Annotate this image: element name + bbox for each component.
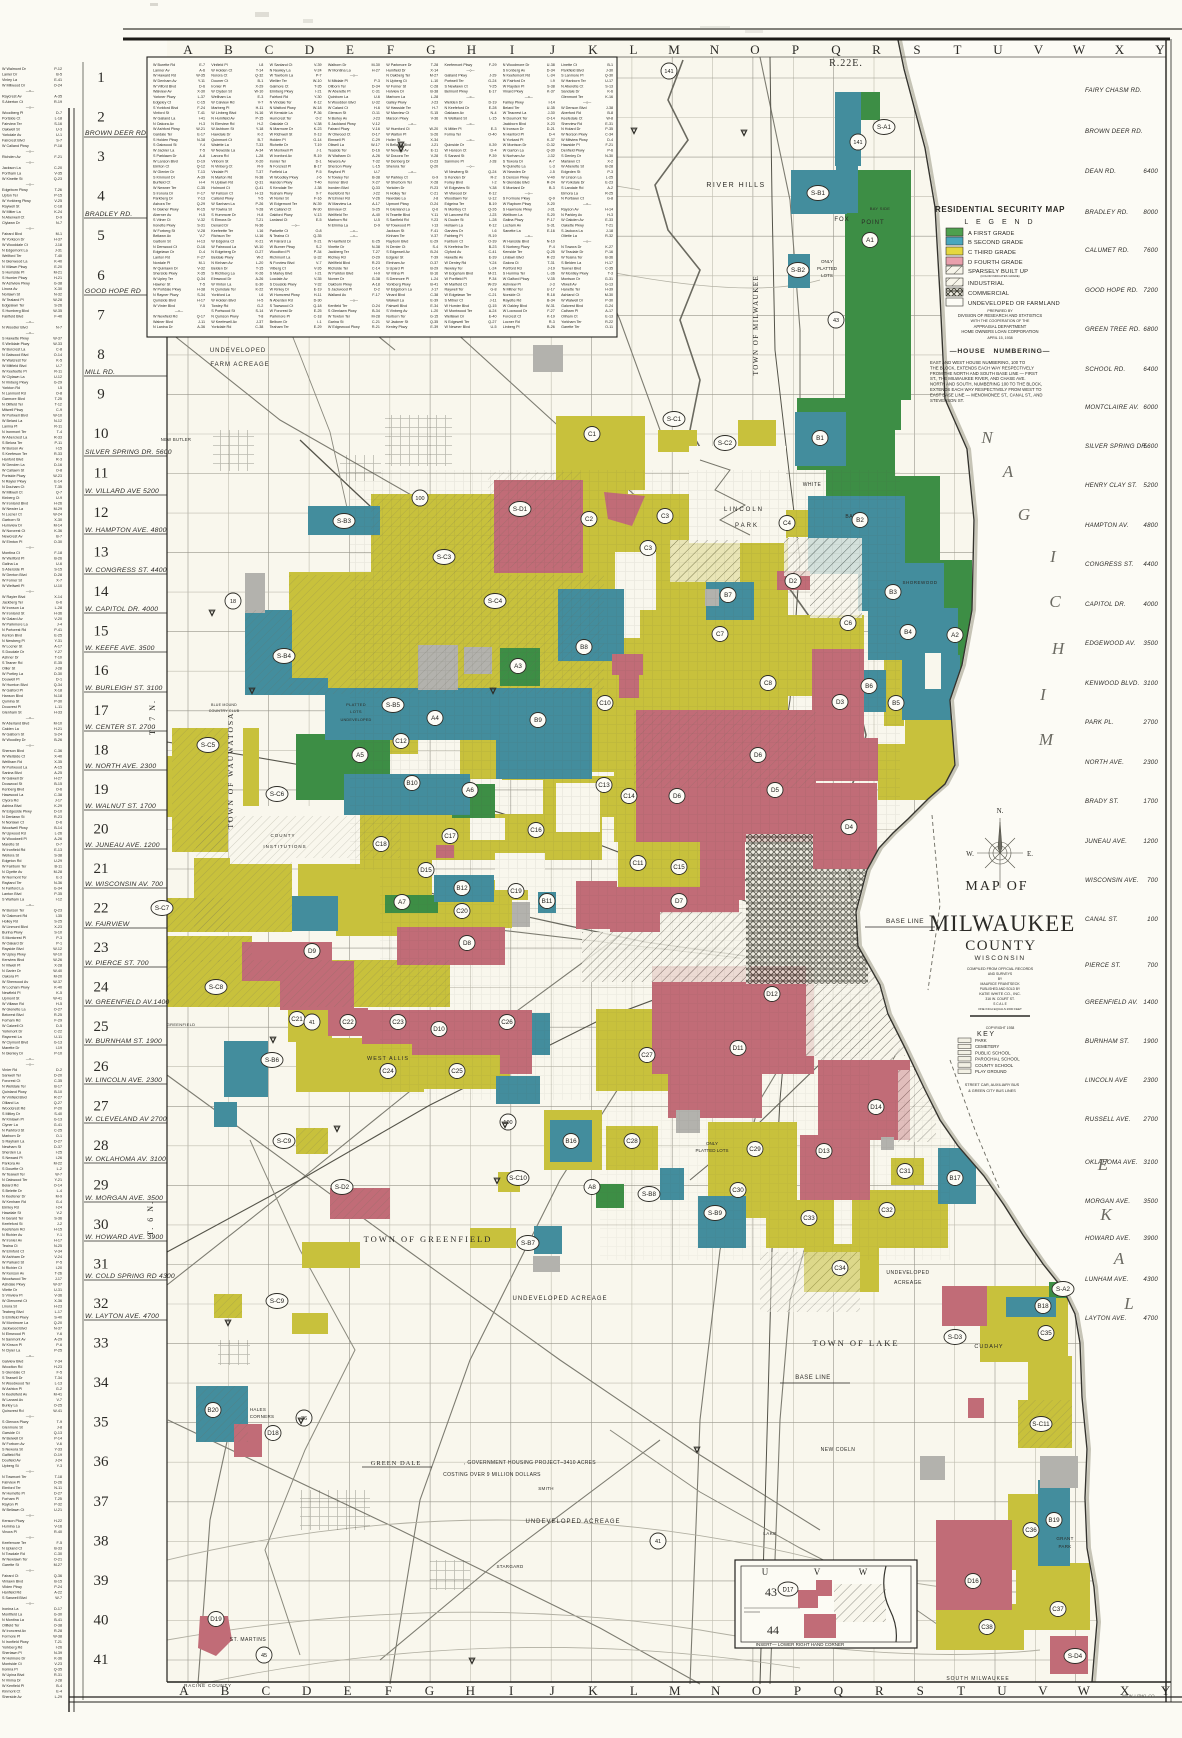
svg-text:Teaina Ct: Teaina Ct (2, 1244, 18, 1248)
svg-text:7: 7 (97, 307, 105, 323)
svg-text:INDUSTRIAL: INDUSTRIAL (968, 281, 1005, 287)
svg-text:NEW COELN: NEW COELN (821, 1447, 856, 1453)
svg-text:PIERCE ST.: PIERCE ST. (1085, 962, 1121, 969)
svg-text:W Teawell Ter: W Teawell Ter (2, 1173, 26, 1177)
svg-text:B-15: B-15 (54, 782, 62, 786)
svg-text:W-29: W-29 (488, 282, 497, 286)
svg-text:I-26: I-26 (56, 1646, 62, 1650)
svg-text:LINCOLN: LINCOLN (724, 507, 764, 513)
svg-text:H-13: H-13 (255, 191, 263, 195)
svg-text:W Haward Rd: W Haward Rd (153, 74, 176, 78)
svg-text:E-3: E-3 (56, 876, 62, 880)
svg-text:S-16: S-16 (54, 122, 62, 126)
svg-text:J-17: J-17 (55, 799, 62, 803)
svg-text:Wellora St: Wellora St (2, 854, 19, 858)
svg-text:A4: A4 (431, 715, 439, 722)
svg-text:L E G E N D: L E G E N D (964, 219, 1035, 226)
svg-text:W Denson Blvd: W Denson Blvd (561, 106, 586, 110)
svg-text:A-34: A-34 (256, 149, 264, 153)
svg-text:4400: 4400 (1143, 561, 1158, 568)
svg-text:B-33: B-33 (54, 1547, 62, 1551)
svg-text:P-35: P-35 (605, 127, 613, 131)
svg-text:Y-5: Y-5 (258, 197, 263, 201)
svg-text:E-30: E-30 (256, 282, 264, 286)
svg-text:R-3: R-3 (56, 458, 62, 462)
svg-text:B-10: B-10 (54, 1090, 62, 1094)
svg-text:S Sanard St: S Sanard St (445, 154, 465, 158)
svg-text:29: 29 (94, 1177, 109, 1193)
svg-text:39: 39 (94, 1573, 109, 1589)
svg-text:Oliborn Ter: Oliborn Ter (328, 84, 347, 88)
svg-text:AND SURVEYS: AND SURVEYS (988, 972, 1013, 976)
svg-text:S Landale Rd: S Landale Rd (561, 186, 583, 190)
svg-text:Elmford Ter: Elmford Ter (2, 1486, 22, 1490)
svg-text:L-20: L-20 (431, 309, 438, 313)
svg-text:C17: C17 (444, 833, 456, 840)
svg-text:Sandale Dr: Sandale Dr (561, 90, 580, 94)
svg-text:H-2: H-2 (257, 122, 263, 126)
svg-text:N-18: N-18 (54, 694, 62, 698)
svg-text:C-35: C-35 (54, 1079, 62, 1083)
svg-text:B-38: B-38 (372, 175, 380, 179)
svg-text:L-24: L-24 (489, 266, 496, 270)
svg-text:T-14: T-14 (256, 68, 263, 72)
svg-text:Galview Blvd: Galview Blvd (2, 1360, 23, 1364)
svg-text:S Douside Pkwy: S Douside Pkwy (270, 282, 297, 286)
svg-text:Walview Av: Walview Av (153, 90, 172, 94)
svg-text:Marborn Dr: Marborn Dr (2, 1134, 21, 1138)
svg-text:J-17: J-17 (55, 1277, 62, 1281)
svg-text:15: 15 (94, 624, 109, 640)
svg-text:N Vinberg Pkwy: N Vinberg Pkwy (2, 381, 28, 385)
svg-text:W Keefewell Av: W Keefewell Av (211, 320, 237, 324)
svg-text:PLAY GROUND: PLAY GROUND (975, 1069, 1007, 1074)
svg-text:V-7: V-7 (316, 261, 322, 265)
svg-text:W Portdale Pkwy: W Portdale Pkwy (153, 288, 181, 292)
svg-text:S-B4: S-B4 (277, 653, 291, 660)
svg-text:MAURICE FRANTSECK: MAURICE FRANTSECK (980, 982, 1020, 986)
svg-text:Aberner Av: Aberner Av (153, 213, 171, 217)
svg-text:S-38: S-38 (54, 854, 62, 858)
svg-text:W Belard La: W Belard La (2, 419, 23, 423)
svg-text:E-33: E-33 (605, 218, 613, 222)
svg-text:38: 38 (94, 1533, 109, 1549)
svg-text:W Montwell Pl: W Montwell Pl (270, 149, 294, 153)
svg-text:Welllawn Dr: Welllawn Dr (445, 315, 465, 319)
svg-text:Y-13: Y-13 (198, 197, 205, 201)
svg-text:S C A L E: S C A L E (993, 1002, 1007, 1006)
svg-text:W Holmore Dr: W Holmore Dr (2, 1657, 26, 1661)
svg-text:N Glenwood La: N Glenwood La (2, 260, 28, 264)
svg-text:Ironina Pl: Ironina Pl (2, 1668, 18, 1672)
svg-text:W Vilina Pl: W Vilina Pl (386, 272, 404, 276)
svg-text:Belmont Pkwy: Belmont Pkwy (445, 90, 469, 94)
svg-text:S Denson Pkwy: S Denson Pkwy (503, 175, 529, 179)
svg-text:P-4: P-4 (549, 245, 555, 249)
svg-text:Y-25: Y-25 (489, 84, 496, 88)
svg-text:S-C2: S-C2 (718, 440, 733, 447)
svg-text:W-8: W-8 (606, 117, 613, 121)
svg-text:W Edgewood Pkwy: W Edgewood Pkwy (328, 325, 360, 329)
svg-text:W-30: W-30 (313, 207, 322, 211)
svg-text:O-14: O-14 (547, 117, 555, 121)
svg-text:7200: 7200 (1143, 287, 1158, 294)
svg-text:X-30: X-30 (54, 287, 62, 291)
svg-text:V: V (814, 1567, 821, 1577)
svg-text:Edgeier St: Edgeier St (386, 256, 403, 260)
svg-text:N Woodwood Ter: N Woodwood Ter (2, 1382, 31, 1386)
svg-text:S Kendale Ter: S Kendale Ter (270, 186, 294, 190)
svg-text:C: C (261, 1683, 270, 1698)
svg-text:S-A2: S-A2 (1056, 1286, 1070, 1293)
svg-text:W Kenside La: W Kenside La (270, 111, 294, 115)
svg-text:19: 19 (94, 782, 109, 798)
svg-text:R-33: R-33 (54, 436, 62, 440)
svg-text:Galcrest Blvd: Galcrest Blvd (561, 304, 583, 308)
svg-text:H: H (1051, 639, 1066, 658)
svg-text:R-3: R-3 (549, 320, 555, 324)
svg-text:A3: A3 (514, 663, 522, 670)
svg-text:C10: C10 (599, 700, 611, 707)
svg-text:C-30: C-30 (54, 1552, 62, 1556)
svg-text:C14: C14 (623, 793, 635, 800)
svg-text:Vilwell Av: Vilwell Av (561, 282, 577, 286)
svg-text:Elmora La: Elmora La (561, 191, 579, 195)
svg-text:FARM ACREAGE: FARM ACREAGE (210, 362, 269, 368)
svg-text:LAKE: LAKE (763, 1531, 777, 1536)
svg-text:H-4: H-4 (199, 181, 205, 185)
svg-text:W Quinlawn Dr: W Quinlawn Dr (153, 266, 179, 270)
svg-text:S Marley Blvd: S Marley Blvd (270, 272, 293, 276)
svg-text:N Hanford Pl: N Hanford Pl (503, 133, 524, 137)
svg-text:D-10: D-10 (54, 810, 62, 814)
svg-text:S-26: S-26 (430, 133, 438, 137)
svg-text:Y-6: Y-6 (57, 1332, 62, 1336)
svg-text:Newley Ter: Newley Ter (445, 266, 464, 270)
svg-text:34: 34 (94, 1375, 110, 1391)
svg-text:W-37: W-37 (53, 1283, 62, 1287)
svg-text:X-14: X-14 (54, 595, 62, 599)
svg-text:S-38: S-38 (547, 84, 555, 88)
svg-text:Sherside Pkwy: Sherside Pkwy (153, 272, 178, 276)
svg-text:—ο—: —ο— (26, 744, 35, 748)
svg-text:S-D4: S-D4 (1068, 1653, 1083, 1660)
svg-text:V-7: V-7 (199, 234, 205, 238)
svg-text:BASE LINE: BASE LINE (795, 1375, 831, 1381)
svg-text:UNDEVELOPED: UNDEVELOPED (210, 348, 266, 354)
svg-text:D-16: D-16 (372, 149, 380, 153)
svg-text:W. GREENFIELD AV.1400: W. GREENFIELD AV.1400 (85, 999, 169, 1006)
svg-text:GOOD HOPE RD: GOOD HOPE RD (85, 288, 141, 295)
svg-text:W Holden Ct: W Holden Ct (211, 68, 232, 72)
svg-text:—ο—: —ο— (466, 95, 475, 99)
svg-text:PARK: PARK (735, 523, 759, 529)
svg-text:U-11: U-11 (54, 1035, 62, 1039)
svg-text:S Portwood St: S Portwood St (211, 309, 235, 313)
svg-text:Fairfield Blvd: Fairfield Blvd (2, 315, 23, 319)
svg-text:J-32: J-32 (548, 154, 555, 158)
svg-text:N-36: N-36 (54, 881, 62, 885)
svg-text:W Rayier Blvd: W Rayier Blvd (2, 595, 25, 599)
svg-text:COUNTRY CLUB: COUNTRY CLUB (209, 709, 240, 713)
svg-text:W Galard Av: W Galard Av (2, 617, 23, 621)
svg-text:T-40: T-40 (55, 254, 62, 258)
svg-text:3100: 3100 (1143, 1159, 1158, 1166)
svg-text:TOWN OF MILWAUKEE: TOWN OF MILWAUKEE (752, 275, 760, 376)
svg-text:& GREEN CITY BUS LINES: & GREEN CITY BUS LINES (968, 1089, 1016, 1093)
svg-text:J-19: J-19 (548, 266, 555, 270)
svg-text:U-6: U-6 (56, 562, 62, 566)
svg-text:U: U (993, 42, 1003, 57)
svg-text:C-21: C-21 (430, 191, 438, 195)
svg-text:W Yorkberg Pkwy: W Yorkberg Pkwy (2, 199, 31, 203)
svg-text:UNDEVELOPED: UNDEVELOPED (886, 1270, 929, 1276)
svg-text:Glenmont Ter: Glenmont Ter (561, 95, 584, 99)
svg-text:W-10: W-10 (255, 245, 264, 249)
svg-text:H-5: H-5 (56, 1002, 62, 1006)
svg-text:Humcrest Ter: Humcrest Ter (270, 117, 293, 121)
svg-text:R-28: R-28 (54, 1629, 62, 1633)
svg-text:P: P (792, 42, 799, 57)
svg-text:D16: D16 (967, 1578, 979, 1585)
svg-text:SHOREWOOD: SHOREWOOD (902, 580, 937, 585)
svg-text:V-35: V-35 (54, 172, 62, 176)
svg-text:W Newden Dr: W Newden Dr (503, 170, 527, 174)
svg-text:G-4: G-4 (56, 1200, 62, 1204)
svg-text:W Calard Ct: W Calard Ct (328, 106, 348, 110)
svg-text:Sherson Pkwy: Sherson Pkwy (328, 165, 352, 169)
svg-text:R-25: R-25 (605, 191, 613, 195)
svg-text:Q-41: Q-41 (255, 186, 263, 190)
svg-text:G-13: G-13 (54, 1118, 62, 1122)
svg-text:W Mitwood Dr: W Mitwood Dr (2, 84, 26, 88)
svg-text:Vilden Pkwy: Vilden Pkwy (2, 1585, 22, 1589)
svg-text:CALUMET RD.: CALUMET RD. (1085, 247, 1129, 254)
svg-text:X-35: X-35 (54, 760, 62, 764)
svg-text:K-40: K-40 (54, 986, 62, 990)
svg-text:LUNHAM AVE.: LUNHAM AVE. (1085, 1276, 1129, 1283)
svg-text:Parkette Ct: Parkette Ct (270, 229, 288, 233)
svg-text:W Montina La: W Montina La (328, 68, 352, 72)
svg-text:Doucrest Pl: Doucrest Pl (2, 705, 21, 709)
svg-text:C3: C3 (644, 545, 653, 552)
svg-text:E-17: E-17 (197, 133, 205, 137)
svg-text:W-35: W-35 (196, 74, 205, 78)
svg-text:—ο—: —ο— (26, 150, 35, 154)
svg-text:Raywell Ter: Raywell Ter (445, 288, 465, 292)
svg-text:Galora Ct: Galora Ct (503, 261, 519, 265)
svg-text:A: A (1002, 462, 1014, 481)
svg-text:W Woodley Dr: W Woodley Dr (2, 738, 26, 742)
svg-text:6400: 6400 (1143, 168, 1158, 175)
svg-text:KENWOOD BLVD.: KENWOOD BLVD. (1085, 680, 1140, 687)
svg-text:J-23: J-23 (431, 100, 438, 104)
svg-text:W Mitwell Ct: W Mitwell Ct (2, 491, 23, 495)
svg-text:Y-5: Y-5 (200, 304, 205, 308)
svg-text:W Woodwell Pl: W Woodwell Pl (2, 837, 27, 841)
svg-text:O-24: O-24 (430, 202, 438, 206)
svg-text:C20: C20 (456, 908, 468, 915)
svg-text:UNDEVELOPED OR FARMLAND: UNDEVELOPED OR FARMLAND (968, 301, 1060, 307)
svg-text:P-5: P-5 (56, 1261, 62, 1265)
svg-text:W-38: W-38 (53, 1635, 62, 1639)
svg-text:W Montmore La: W Montmore La (2, 1321, 29, 1325)
svg-text:W Hanfield Dr: W Hanfield Dr (328, 240, 352, 244)
svg-text:O-30: O-30 (54, 540, 62, 544)
svg-text:G-8: G-8 (607, 197, 613, 201)
svg-text:W Wellside Ct: W Wellside Ct (2, 755, 25, 759)
svg-text:W Rayborn Pkwy: W Rayborn Pkwy (503, 202, 531, 206)
svg-text:W. BURNHAM ST. 1900: W. BURNHAM ST. 1900 (85, 1038, 162, 1045)
svg-text:PARK: PARK (975, 1038, 987, 1043)
svg-text:A-18: A-18 (372, 282, 380, 286)
svg-text:S Oakwood St: S Oakwood St (153, 143, 177, 147)
svg-text:H-17: H-17 (605, 261, 613, 265)
svg-text:S-13: S-13 (605, 84, 613, 88)
svg-text:W Norier St: W Norier St (270, 197, 289, 201)
svg-text:COUNTY SCHOOL: COUNTY SCHOOL (975, 1063, 1014, 1068)
svg-text:H-23: H-23 (54, 1365, 62, 1369)
svg-text:M-20: M-20 (54, 975, 62, 979)
svg-text:PARK: PARK (1058, 1544, 1071, 1549)
svg-text:INSERT— LOWER RIGHT HAND CORNE: INSERT— LOWER RIGHT HAND CORNER (756, 1642, 845, 1647)
svg-text:O-27: O-27 (255, 250, 263, 254)
svg-text:C27: C27 (641, 1052, 653, 1059)
svg-text:W-10: W-10 (255, 90, 264, 94)
svg-text:T-28: T-28 (431, 63, 438, 67)
svg-text:Q-12: Q-12 (197, 165, 205, 169)
svg-text:Handen Pkwy: Handen Pkwy (270, 181, 293, 185)
svg-text:D-4: D-4 (199, 250, 205, 254)
svg-text:I-6: I-6 (259, 293, 263, 297)
svg-text:S-24: S-24 (54, 733, 62, 737)
svg-text:T-19: T-19 (314, 143, 321, 147)
svg-text:L-18: L-18 (55, 117, 62, 121)
svg-text:V-28: V-28 (431, 154, 439, 158)
svg-text:Y-4: Y-4 (200, 143, 205, 147)
svg-text:C25: C25 (451, 1068, 463, 1075)
svg-text:3900: 3900 (1143, 1235, 1158, 1242)
svg-text:W Belwell Dr: W Belwell Dr (2, 1437, 24, 1441)
svg-text:K-37: K-37 (547, 90, 555, 94)
svg-text:U-10: U-10 (54, 584, 62, 588)
svg-text:L: L (630, 1683, 638, 1698)
svg-text:N Elmwood Pl: N Elmwood Pl (2, 1332, 25, 1336)
svg-text:Calham Pl: Calham Pl (561, 309, 578, 313)
svg-text:W-26: W-26 (53, 958, 62, 962)
svg-text:Kenton Blvd: Kenton Blvd (2, 634, 22, 638)
svg-text:R-32: R-32 (605, 234, 613, 238)
svg-text:W Locham Pkwy: W Locham Pkwy (2, 986, 30, 990)
svg-text:Jackwood Blvd: Jackwood Blvd (2, 1327, 27, 1331)
svg-text:E-29: E-29 (430, 240, 438, 244)
svg-text:40: 40 (94, 1612, 109, 1628)
svg-text:S-C7: S-C7 (155, 905, 170, 912)
svg-text:N Keefemont Rd: N Keefemont Rd (503, 74, 530, 78)
svg-text:H-8: H-8 (257, 213, 263, 217)
svg-text:P-30: P-30 (54, 700, 62, 704)
svg-text:L-36: L-36 (547, 272, 554, 276)
svg-text:N Sanmont Av: N Sanmont Av (2, 1338, 26, 1342)
svg-text:S Sanfield Rd: S Sanfield Rd (386, 218, 409, 222)
svg-text:Wellford Ter: Wellford Ter (2, 254, 22, 258)
svg-text:A-22: A-22 (54, 1591, 62, 1595)
svg-text:Jackberg Ter: Jackberg Ter (2, 601, 24, 605)
svg-text:Wellfield Blvd: Wellfield Blvd (328, 261, 350, 265)
svg-text:Q: Q (831, 42, 841, 57)
svg-text:X-28: X-28 (430, 181, 438, 185)
svg-text:V-26: V-26 (372, 197, 380, 201)
svg-text:I-12: I-12 (56, 898, 62, 902)
svg-text:O-39: O-39 (488, 240, 496, 244)
svg-text:C3: C3 (661, 513, 670, 520)
svg-text:S Ironora Dr: S Ironora Dr (153, 191, 174, 195)
svg-text:W Edgelawn Ter: W Edgelawn Ter (445, 293, 473, 297)
svg-text:D-2: D-2 (56, 1068, 62, 1072)
svg-text:Ashina Blvd: Ashina Blvd (2, 804, 21, 808)
svg-text:R-11: R-11 (54, 370, 62, 374)
svg-text:N Glendale Blvd: N Glendale Blvd (503, 181, 530, 185)
svg-text:V-39: V-39 (314, 63, 322, 67)
svg-text:W-24: W-24 (53, 513, 62, 517)
svg-text:M-29: M-29 (54, 507, 62, 511)
svg-text:C-34: C-34 (605, 133, 613, 137)
svg-text:P: P (794, 1683, 801, 1698)
svg-text:T-25: T-25 (55, 397, 62, 401)
svg-text:O-21: O-21 (54, 1558, 62, 1562)
svg-text:H-14: H-14 (605, 207, 613, 211)
svg-text:N Forcrest Pl: N Forcrest Pl (270, 165, 292, 169)
svg-text:K-5: K-5 (56, 359, 62, 363)
svg-text:S Vilner Ct: S Vilner Ct (153, 218, 171, 222)
svg-text:K-16: K-16 (605, 95, 613, 99)
svg-text:Belborn Dr: Belborn Dr (270, 320, 288, 324)
svg-text:T-33: T-33 (256, 143, 263, 147)
svg-text:R-21: R-21 (372, 325, 380, 329)
svg-text:Q-9: Q-9 (549, 197, 555, 201)
svg-text:N Doumont Ter: N Doumont Ter (503, 117, 529, 121)
svg-text:S Humina Ter: S Humina Ter (503, 272, 526, 276)
svg-text:N-4: N-4 (491, 111, 497, 115)
svg-text:BAY SIDE: BAY SIDE (870, 206, 891, 211)
svg-text:A-7: A-7 (549, 159, 555, 163)
svg-text:G-31: G-31 (605, 277, 613, 281)
svg-text:Quinland Pkwy: Quinland Pkwy (2, 1090, 27, 1094)
svg-text:S Belette Dr: S Belette Dr (2, 1189, 23, 1193)
svg-text:Q-25: Q-25 (547, 250, 555, 254)
svg-text:G-29: G-29 (54, 381, 62, 385)
svg-text:F-5: F-5 (56, 1541, 62, 1545)
svg-text:B-24: B-24 (430, 250, 438, 254)
svg-text:M-1: M-1 (56, 232, 62, 236)
svg-text:W Oakden Av: W Oakden Av (561, 218, 584, 222)
svg-text:Denard Dr: Denard Dr (211, 224, 229, 228)
svg-text:S Glendale Ct: S Glendale Ct (2, 1371, 25, 1375)
svg-text:V-25: V-25 (54, 199, 62, 203)
svg-text:E-13: E-13 (54, 848, 62, 852)
svg-text:D17: D17 (782, 1588, 794, 1594)
svg-text:W Wellwell Pl: W Wellwell Pl (2, 584, 24, 588)
svg-text:W Aberland Blvd: W Aberland Blvd (2, 722, 29, 726)
svg-text:W Wooddale Ct: W Wooddale Ct (2, 243, 28, 247)
svg-text:17: 17 (94, 703, 110, 719)
svg-text:N Glenland La: N Glenland La (386, 207, 411, 211)
svg-text:K-29: K-29 (54, 804, 62, 808)
svg-text:Rayborn Blvd: Rayborn Blvd (386, 240, 408, 244)
svg-text:B-5: B-5 (56, 73, 62, 77)
svg-text:W. WISCONSIN AV. 700: W. WISCONSIN AV. 700 (85, 881, 163, 888)
svg-text:V-24: V-24 (54, 1255, 62, 1259)
